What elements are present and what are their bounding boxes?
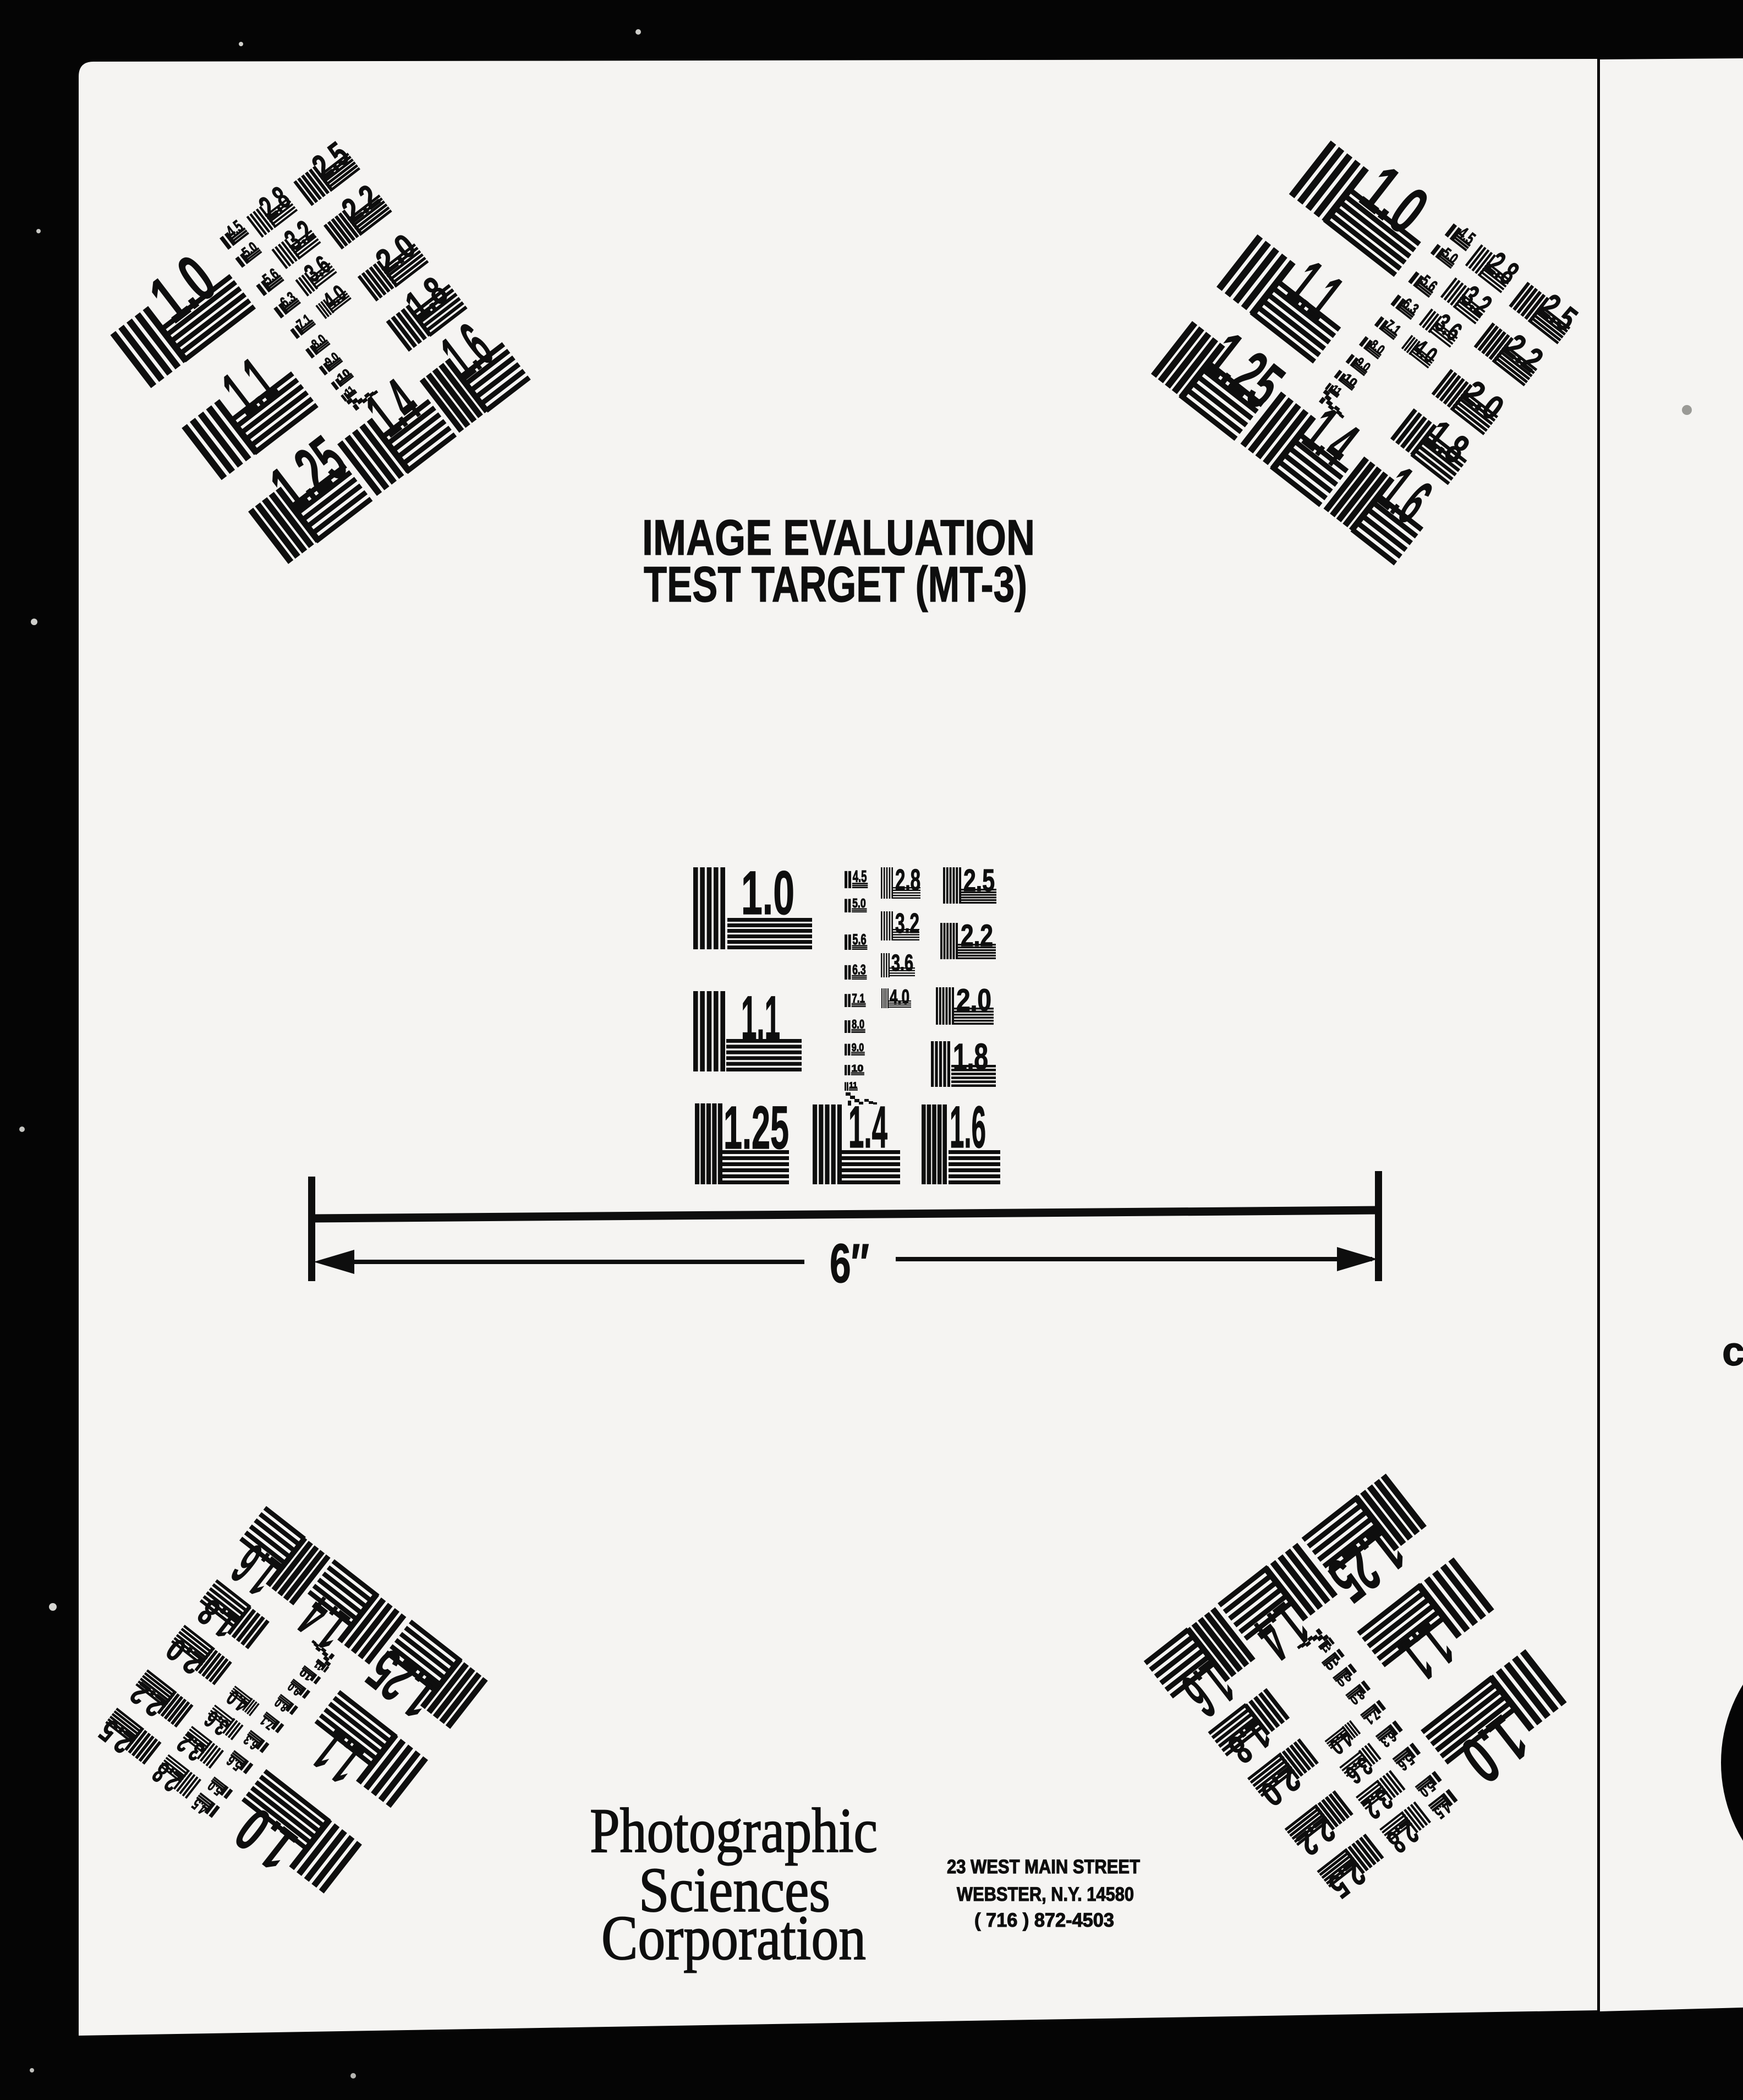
svg-text:( 716 ) 872-4503: ( 716 ) 872-4503 (974, 1910, 1114, 1931)
svg-text:23 WEST MAIN STREET: 23 WEST MAIN STREET (947, 1856, 1140, 1878)
svg-text:Corporation: Corporation (601, 1903, 866, 1973)
svg-text:c: c (1722, 1328, 1743, 1374)
svg-text:TEST TARGET (MT-3): TEST TARGET (MT-3) (644, 557, 1027, 612)
svg-text:6″: 6″ (830, 1233, 869, 1294)
svg-text:WEBSTER, N.Y. 14580: WEBSTER, N.Y. 14580 (957, 1884, 1134, 1905)
